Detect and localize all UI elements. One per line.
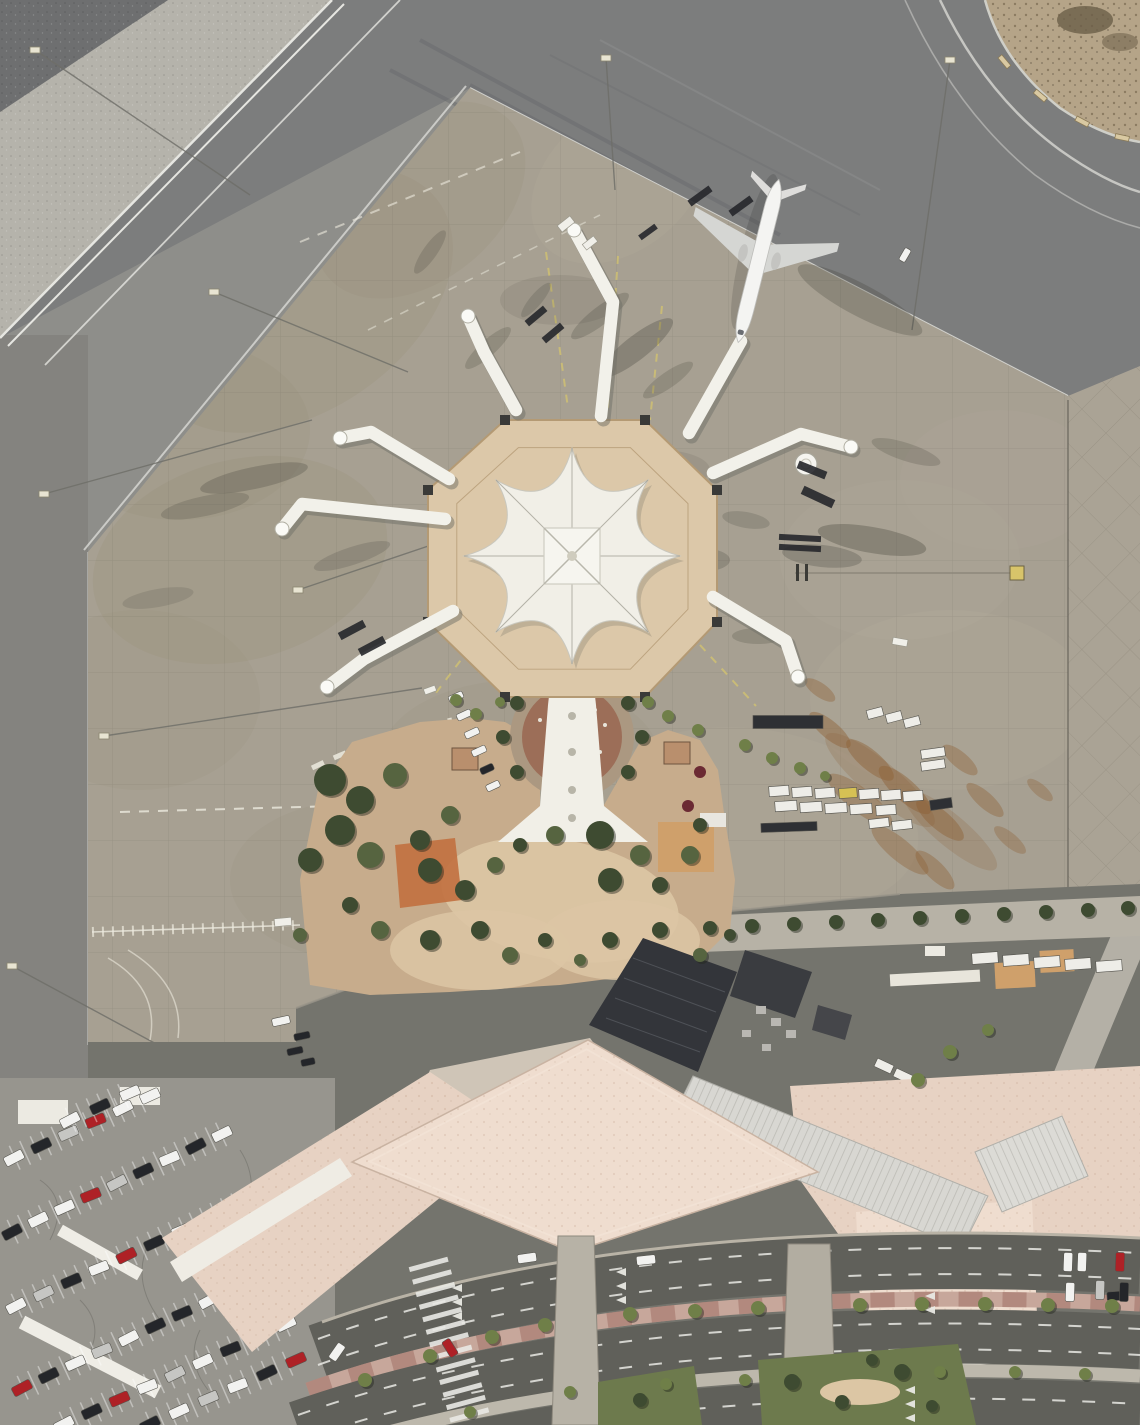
maroon-bush-a bbox=[694, 766, 706, 778]
median-palm bbox=[751, 1301, 765, 1315]
small-shed bbox=[925, 946, 945, 956]
median-palm bbox=[623, 1307, 637, 1321]
tree bbox=[724, 929, 736, 941]
dirt-dark-patch bbox=[1057, 6, 1113, 34]
tree bbox=[693, 948, 707, 962]
lawn-tree bbox=[784, 1374, 800, 1390]
car bbox=[1065, 1282, 1075, 1301]
sidewalk-tree bbox=[787, 917, 801, 931]
median-palm bbox=[915, 1297, 929, 1311]
cart bbox=[859, 788, 880, 799]
ground-line-tag bbox=[30, 47, 40, 53]
jet-bridge-cab bbox=[461, 309, 475, 323]
cart bbox=[769, 785, 790, 796]
tree bbox=[820, 771, 830, 781]
tree bbox=[538, 933, 552, 947]
tree bbox=[635, 730, 649, 744]
tree bbox=[693, 818, 707, 832]
car bbox=[1095, 1280, 1105, 1299]
sidewalk-tree bbox=[955, 909, 969, 923]
tree bbox=[510, 696, 524, 710]
tree bbox=[325, 815, 355, 845]
diagonal-apron-grid bbox=[1068, 366, 1140, 890]
sidewalk-tree bbox=[745, 919, 759, 933]
car bbox=[636, 1255, 656, 1266]
median-palm bbox=[853, 1298, 867, 1312]
tree bbox=[502, 947, 518, 963]
tree bbox=[652, 877, 668, 893]
tree bbox=[911, 1073, 925, 1087]
tree bbox=[418, 858, 442, 882]
tree bbox=[662, 710, 674, 722]
sidewalk-tree bbox=[703, 921, 717, 935]
sidewalk-tree bbox=[997, 907, 1011, 921]
car bbox=[1119, 1282, 1129, 1301]
tree bbox=[982, 1024, 994, 1036]
cart bbox=[1096, 960, 1123, 973]
tree bbox=[496, 730, 510, 744]
median-palm bbox=[464, 1406, 476, 1418]
cart bbox=[753, 716, 823, 729]
tree bbox=[739, 739, 751, 751]
sidewalk-tree bbox=[829, 915, 843, 929]
tree bbox=[298, 848, 322, 872]
tree bbox=[383, 763, 407, 787]
ground-line-tag bbox=[7, 963, 17, 969]
median-palm bbox=[1009, 1366, 1021, 1378]
cart bbox=[825, 802, 848, 814]
yellow-sign bbox=[1010, 566, 1024, 580]
tree bbox=[450, 694, 462, 706]
tree bbox=[602, 932, 618, 948]
cart bbox=[972, 952, 999, 965]
tree bbox=[692, 724, 704, 736]
median-palm bbox=[1079, 1368, 1091, 1380]
lawn-tree bbox=[835, 1395, 849, 1409]
sidewalk-tree bbox=[1039, 905, 1053, 919]
tree bbox=[495, 697, 505, 707]
sidewalk-tree bbox=[1121, 901, 1135, 915]
lawn-path bbox=[820, 1379, 900, 1405]
cart bbox=[761, 822, 817, 833]
cart bbox=[1003, 954, 1030, 967]
cart bbox=[839, 787, 858, 798]
aerial-photo-stage: Aerial satellite view of an airport: oct… bbox=[0, 0, 1140, 1425]
median-palm bbox=[978, 1297, 992, 1311]
ground-line-tag bbox=[293, 587, 303, 593]
tree bbox=[621, 765, 635, 779]
jet-bridge-cab bbox=[320, 680, 334, 694]
median-palm bbox=[934, 1366, 946, 1378]
cart bbox=[850, 803, 873, 815]
median-palm bbox=[660, 1378, 672, 1390]
tree bbox=[510, 765, 524, 779]
lawn-tree bbox=[926, 1400, 938, 1412]
cart bbox=[775, 800, 798, 812]
tree bbox=[794, 762, 806, 774]
tree bbox=[420, 930, 440, 950]
diagonal-apron-section bbox=[1068, 366, 1140, 890]
tree bbox=[314, 764, 346, 796]
tree bbox=[586, 821, 614, 849]
center-mast bbox=[567, 551, 577, 561]
tree bbox=[455, 880, 475, 900]
entry-pavilion-east bbox=[664, 742, 690, 764]
maroon-bush-b bbox=[682, 800, 694, 812]
median-palm bbox=[739, 1374, 751, 1386]
jet-bridge-cab bbox=[333, 431, 347, 445]
cart bbox=[881, 789, 902, 800]
tree bbox=[574, 954, 586, 966]
cart bbox=[800, 801, 823, 813]
ground-line-tag bbox=[39, 491, 49, 497]
cart bbox=[1034, 956, 1061, 969]
tree bbox=[621, 696, 635, 710]
median-palm bbox=[358, 1373, 372, 1387]
tree bbox=[470, 708, 482, 720]
car bbox=[1115, 1252, 1125, 1271]
tree bbox=[943, 1045, 957, 1059]
tree bbox=[471, 921, 489, 939]
tree bbox=[410, 830, 430, 850]
tree bbox=[357, 842, 383, 868]
white-equipment-item bbox=[274, 917, 292, 926]
tree bbox=[293, 928, 307, 942]
dirt-dark-patch2 bbox=[1102, 33, 1138, 51]
tree bbox=[766, 752, 778, 764]
tree bbox=[598, 868, 622, 892]
cart bbox=[903, 790, 924, 801]
ground-line-tag bbox=[99, 733, 109, 739]
sidewalk-tree bbox=[871, 913, 885, 927]
sidewalk-tree bbox=[1081, 903, 1095, 917]
tree bbox=[346, 786, 374, 814]
lawn-tree bbox=[866, 1354, 878, 1366]
tree bbox=[487, 857, 503, 873]
median-palm bbox=[538, 1318, 552, 1332]
median-palm bbox=[1041, 1298, 1055, 1312]
tree bbox=[642, 696, 654, 708]
tree bbox=[681, 846, 699, 864]
tree bbox=[371, 921, 389, 939]
tree bbox=[546, 826, 564, 844]
cart bbox=[815, 787, 836, 798]
median-palm bbox=[564, 1386, 576, 1398]
median-palm bbox=[423, 1349, 437, 1363]
cart bbox=[892, 819, 913, 830]
jet-bridge-cab bbox=[275, 522, 289, 536]
sidewalk-tree bbox=[913, 911, 927, 925]
cart bbox=[792, 786, 813, 797]
median-palm bbox=[1105, 1299, 1119, 1313]
ground-line-tag bbox=[209, 289, 219, 295]
tree bbox=[441, 806, 459, 824]
car bbox=[1063, 1252, 1073, 1271]
jet-bridge-cab bbox=[791, 670, 805, 684]
cart bbox=[876, 804, 897, 815]
lawn-tree bbox=[633, 1393, 647, 1407]
jet-bridge-cab bbox=[844, 440, 858, 454]
tree bbox=[513, 838, 527, 852]
tree bbox=[630, 845, 650, 865]
cart bbox=[1065, 958, 1092, 971]
tree bbox=[652, 922, 668, 938]
median-palm bbox=[688, 1304, 702, 1318]
lawn-tree bbox=[894, 1364, 910, 1380]
tree bbox=[342, 897, 358, 913]
median-palm bbox=[485, 1330, 499, 1344]
octagon-terminal bbox=[423, 415, 722, 702]
ground-line-tag bbox=[945, 57, 955, 63]
ground-line-tag bbox=[601, 55, 611, 61]
cart bbox=[869, 817, 890, 828]
airport-aerial-image bbox=[0, 0, 1140, 1425]
car bbox=[1077, 1252, 1087, 1271]
